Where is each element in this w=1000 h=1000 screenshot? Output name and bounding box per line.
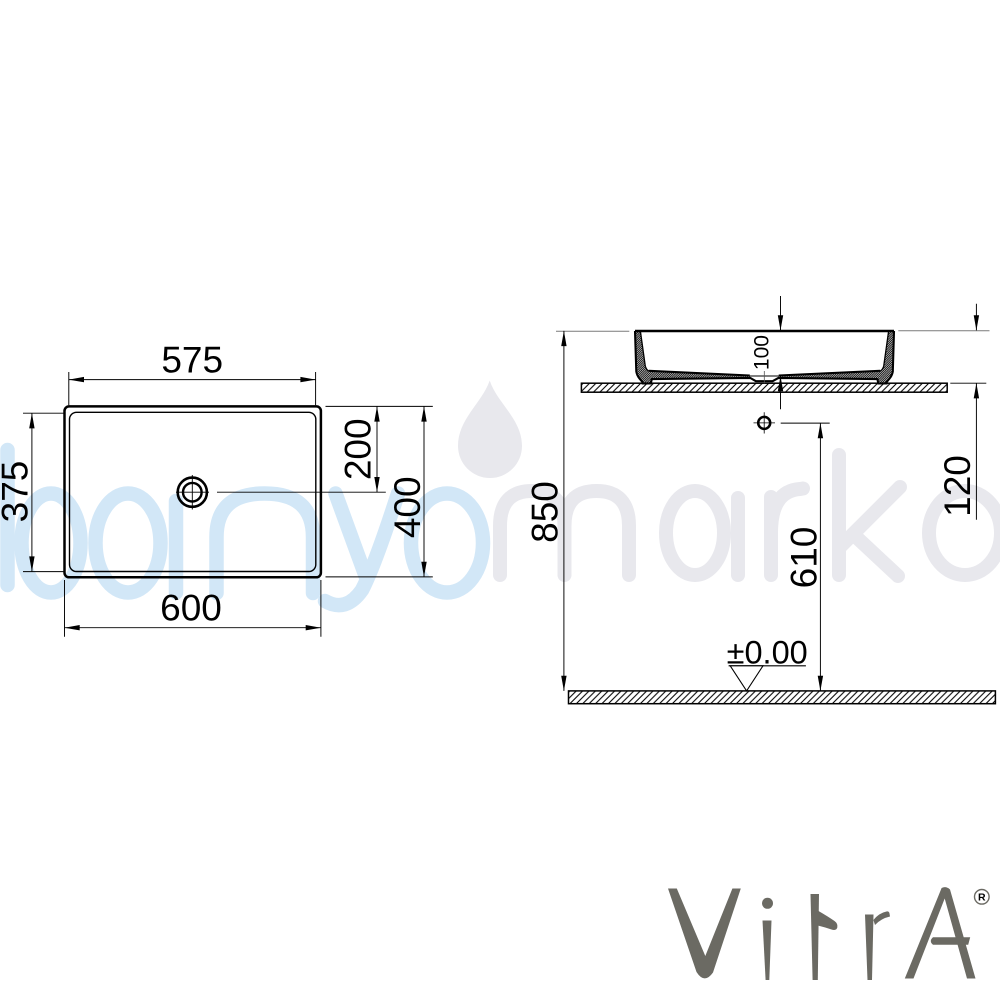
svg-text:200: 200: [338, 418, 379, 480]
svg-text:120: 120: [937, 455, 978, 517]
svg-text:375: 375: [0, 461, 35, 523]
svg-text:575: 575: [161, 340, 223, 381]
svg-text:850: 850: [525, 481, 566, 543]
svg-text:±0.00: ±0.00: [727, 635, 808, 671]
svg-text:600: 600: [160, 588, 222, 629]
svg-text:R: R: [978, 892, 986, 904]
svg-text:610: 610: [784, 527, 825, 589]
svg-text:100: 100: [750, 335, 773, 370]
svg-text:400: 400: [387, 476, 428, 538]
